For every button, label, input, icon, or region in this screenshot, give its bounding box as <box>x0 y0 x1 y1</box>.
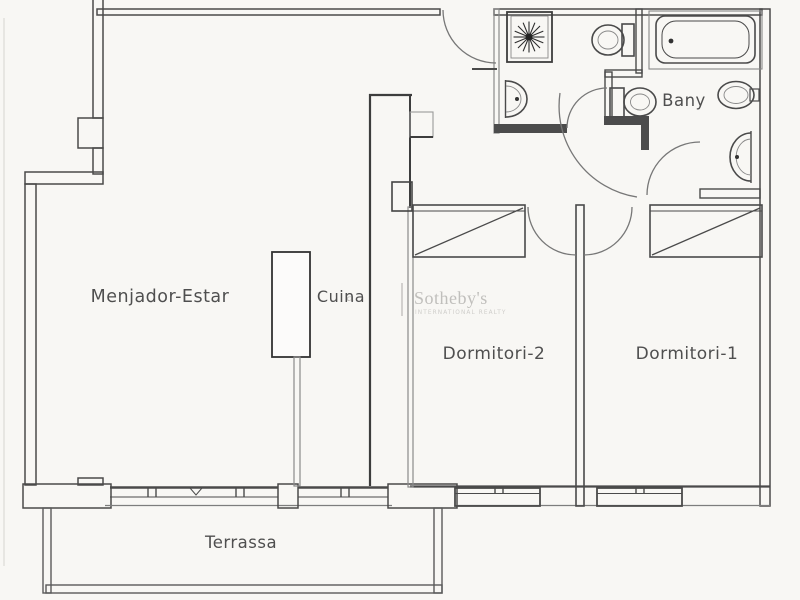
kitchen-counter <box>272 252 310 357</box>
wall-step <box>641 125 649 150</box>
label-bedroom2: Dormitori-2 <box>443 344 546 364</box>
door-arc-bedroom2 <box>528 207 576 255</box>
wall-bath-divider <box>636 9 642 73</box>
toilet-bowl-inner <box>631 94 650 110</box>
tub-basin <box>662 21 749 58</box>
tub-faucet <box>669 39 674 44</box>
basin-drain <box>735 155 739 159</box>
door-arc-entry <box>443 10 496 63</box>
shower-tray <box>507 12 552 62</box>
wall-bany-bottom <box>700 189 760 198</box>
basin-drain <box>515 97 519 101</box>
wall-segment <box>605 72 612 123</box>
wall-notch <box>78 118 103 148</box>
bedroom-windows <box>410 487 770 507</box>
watermark-tagline: INTERNATIONAL REALTY <box>415 310 507 316</box>
living-windows <box>105 484 457 508</box>
wall-notch <box>410 112 433 137</box>
wall-segment <box>93 148 103 174</box>
washbasin-bany-lower <box>730 131 751 183</box>
wall-pier <box>278 484 298 508</box>
toilet-bowl <box>624 88 656 116</box>
watermark-brand: Sotheby's <box>414 288 488 308</box>
basin-outline <box>718 82 754 109</box>
terrace-wall-bottom <box>46 585 442 593</box>
door-arc-bany <box>647 142 700 195</box>
wall-left <box>25 184 36 485</box>
bathtub <box>649 11 762 69</box>
outer-walls <box>23 0 770 508</box>
floor-plan-page: a Sotheby's INTERNATIONAL REALTY Menjado… <box>0 0 800 600</box>
basin-outline <box>730 133 751 181</box>
door-arc-shower-room <box>567 88 607 128</box>
room-labels: Menjador-Estar Cuina Dormitori-2 Dormito… <box>91 91 739 552</box>
floor-plan: a Sotheby's INTERNATIONAL REALTY Menjado… <box>0 0 800 600</box>
wall-top <box>97 9 440 15</box>
washbasin-shower-room <box>506 80 528 118</box>
toilet-bany <box>610 88 656 117</box>
wall-jog <box>25 172 103 184</box>
window-vee-mark <box>190 488 202 495</box>
window-box <box>597 488 682 506</box>
terrace-wall-right <box>434 508 442 593</box>
washbasin-bany-top <box>718 82 759 109</box>
wall-kitchen-partition <box>294 357 300 486</box>
label-kitchen: Cuina <box>317 287 365 306</box>
door-arc-bedroom1 <box>584 207 632 255</box>
wall-shower-bottom <box>494 124 567 133</box>
wall-bedroom-divider <box>576 205 584 506</box>
toilet-bowl <box>592 25 624 55</box>
label-terrace: Terrassa <box>204 533 277 552</box>
label-bedroom1: Dormitori-1 <box>636 344 739 364</box>
wall-bottom-left-chunk <box>23 484 111 508</box>
wardrobe-diagonal <box>652 208 760 255</box>
label-bathroom: Bany <box>662 91 706 110</box>
shower-drain <box>526 34 533 41</box>
toilet-shower-room <box>592 24 634 56</box>
terrace-wall-left <box>43 508 51 593</box>
toilet-bowl-inner <box>598 31 618 49</box>
label-living-room: Menjador-Estar <box>91 287 230 307</box>
wall-segment <box>93 0 103 118</box>
basin-inner <box>724 87 748 104</box>
wall-shower-left <box>494 9 499 133</box>
tub-deck <box>649 11 762 69</box>
window-box <box>455 488 540 506</box>
wardrobe-diagonal <box>415 208 523 255</box>
